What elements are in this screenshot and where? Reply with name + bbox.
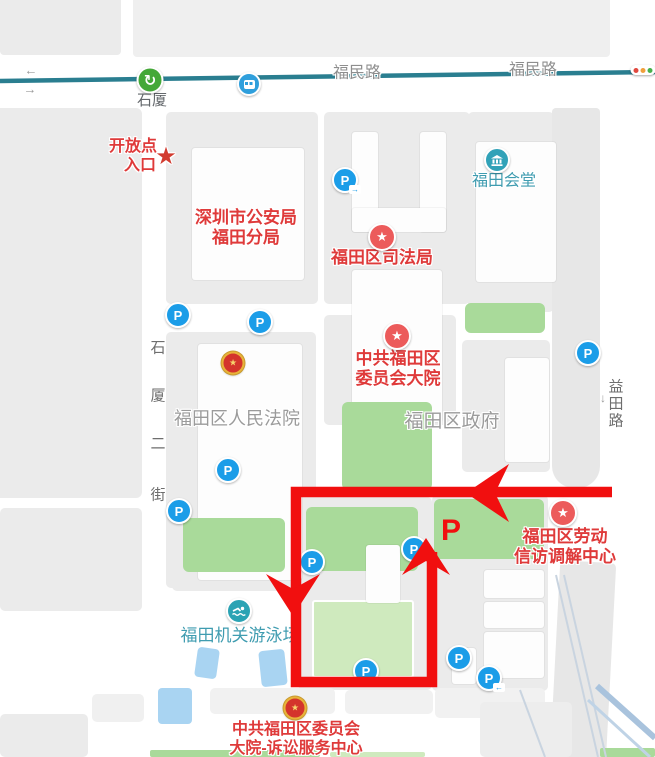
justice-courtyard — [352, 208, 446, 232]
route-parking-letter: P — [441, 514, 461, 548]
road-label-shixia2-char: 二 — [150, 433, 165, 454]
bus-stop-icon[interactable] — [237, 72, 261, 96]
swimmer-glyph — [232, 606, 246, 617]
open-point-star-icon: ★ — [155, 143, 177, 171]
metro-station-icon[interactable]: ↻ — [137, 67, 164, 94]
road-label-shixia2-char: 厦 — [150, 385, 165, 406]
labor-center-label[interactable]: 福田区劳动 信访调解中心 — [514, 527, 616, 567]
labor-star-marker-icon[interactable]: ★ — [549, 499, 577, 527]
city-block — [480, 702, 572, 757]
parking-entrance-icon[interactable]: P → — [332, 167, 358, 193]
parking-icon[interactable]: P — [166, 498, 192, 524]
hall-building-icon[interactable] — [484, 147, 510, 173]
open-point-label: 开放点 入口 — [109, 138, 157, 176]
parking-icon[interactable]: P — [446, 645, 472, 671]
road-label-shixia2-char: 街 — [150, 484, 165, 505]
entrance-arrow-icon: → — [349, 185, 361, 194]
police-label[interactable]: 深圳市公安局 福田分局 — [195, 208, 297, 248]
building — [366, 545, 400, 603]
committee-label[interactable]: 中共福田区 委员会大院 — [356, 349, 441, 389]
road-label-yitian-char: 路 — [608, 410, 623, 431]
bus-glyph — [244, 80, 255, 89]
government-label[interactable]: 福田区政府 — [404, 411, 499, 433]
city-block — [92, 694, 144, 722]
city-block — [210, 688, 335, 714]
city-block — [0, 508, 142, 611]
water-pool — [158, 688, 192, 724]
road-label-fumin-left: 福民路 — [333, 65, 381, 84]
parking-icon[interactable]: P — [575, 340, 601, 366]
water-pool — [194, 647, 220, 680]
bank-glyph — [491, 155, 503, 166]
justice-star-marker-icon[interactable]: ★ — [368, 223, 396, 251]
court-label[interactable]: 福田区人民法院 — [174, 408, 300, 429]
yitian-road-strip — [552, 108, 600, 488]
entrance-arrow-icon: ← — [493, 683, 505, 692]
city-block — [0, 714, 88, 757]
court-emblem-icon[interactable]: ★ — [222, 352, 245, 375]
parking-icon[interactable]: P — [247, 309, 273, 335]
hall-label[interactable]: 福田会堂 — [472, 173, 536, 192]
parking-icon[interactable]: P — [215, 457, 241, 483]
yitian-direction-arrow-icon: ↓ — [600, 391, 606, 405]
oneway-left-arrow-icon: ← — [25, 63, 38, 78]
building — [484, 602, 544, 628]
parking-entrance-icon[interactable]: P ← — [476, 665, 502, 691]
building — [484, 570, 544, 598]
park-green — [183, 518, 285, 572]
city-block — [133, 0, 610, 57]
parking-icon[interactable]: P — [299, 549, 325, 575]
water-pool — [258, 649, 288, 688]
parking-icon[interactable]: P — [353, 658, 379, 684]
city-block — [345, 690, 433, 714]
parking-icon[interactable]: P — [165, 302, 191, 328]
city-block — [0, 0, 121, 55]
swimming-pool-icon[interactable] — [226, 598, 252, 624]
committee-star-marker-icon[interactable]: ★ — [383, 322, 411, 350]
parking-icon[interactable]: P — [401, 536, 427, 562]
litigation-center-label[interactable]: 中共福田区委员会 大院-诉讼服务中心 — [229, 721, 362, 757]
pool-label[interactable]: 福田机关游泳场 — [181, 626, 300, 646]
map-canvas[interactable]: ← → ↻ 石厦 福民路 福民路 开放点 入口 ★ 石 厦 二 街 益 田 路 … — [0, 0, 655, 757]
green-strip — [600, 748, 655, 757]
road-label-fumin-right: 福民路 — [509, 62, 557, 81]
oneway-right-arrow-icon: → — [24, 82, 37, 97]
traffic-light-icon — [631, 65, 655, 75]
litigation-emblem-icon[interactable]: ★ — [284, 697, 307, 720]
station-label[interactable]: 石厦 — [137, 92, 167, 110]
government-building — [505, 358, 549, 462]
park-green — [465, 303, 545, 333]
road-label-shixia2-char: 石 — [150, 337, 165, 358]
